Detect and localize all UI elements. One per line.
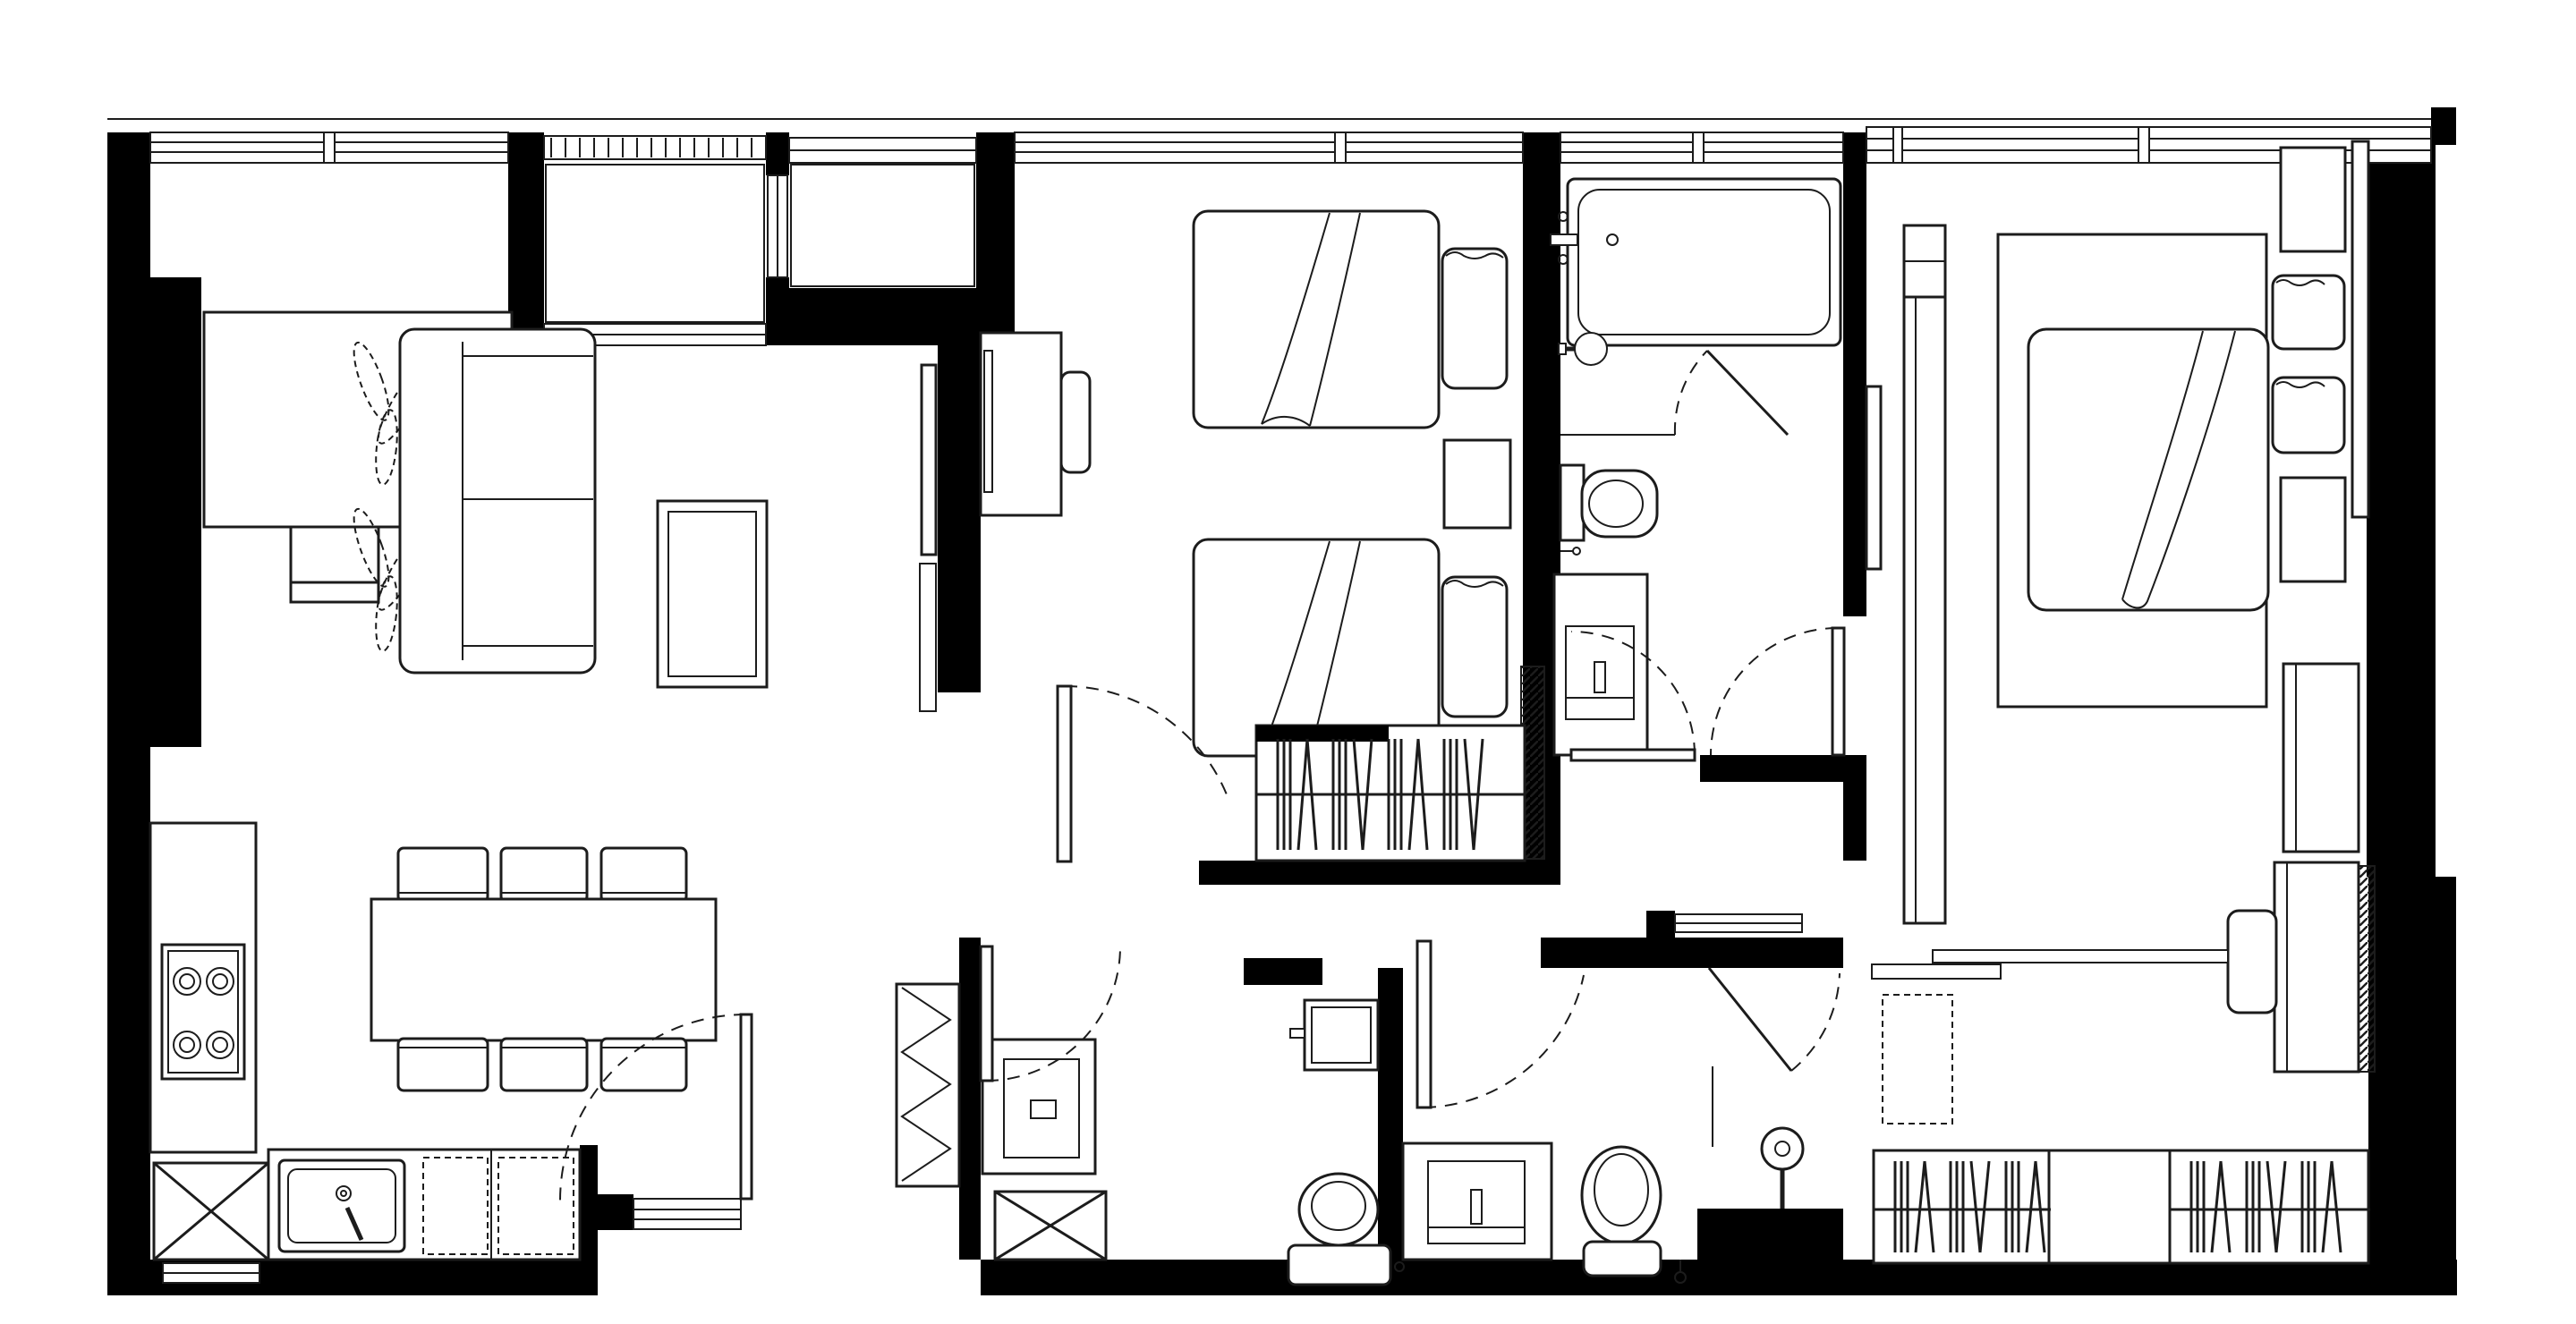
wall-bath2-north xyxy=(1244,958,1322,985)
floor-plan-svg xyxy=(0,0,2576,1324)
headboard xyxy=(2352,141,2368,517)
bathroom2-door-leaf[interactable] xyxy=(981,946,992,1081)
coffee-table xyxy=(658,501,767,687)
kitchen-sink xyxy=(279,1160,404,1252)
wall-bath-master xyxy=(1843,132,1866,616)
pillow xyxy=(2273,378,2344,453)
shelf-end-block xyxy=(1646,911,1675,938)
wall-vestibule-left xyxy=(959,968,981,1260)
wall-bath3-north xyxy=(1541,938,1843,968)
appliance-void-x-box xyxy=(154,1163,268,1283)
tub-faucet xyxy=(1551,234,1577,245)
pier-living-niche xyxy=(508,132,544,335)
bathtub xyxy=(1551,179,1841,345)
shower xyxy=(1713,1066,1803,1209)
wall-entry-stub xyxy=(592,1194,633,1230)
bathroom3-north-door-leaf[interactable] xyxy=(1417,941,1431,1108)
shoe-cabinet xyxy=(897,984,959,1186)
floor-plan-canvas: Two-bedroom apartment floor plan xyxy=(0,0,2576,1324)
wall-bath2-north-stub xyxy=(959,938,981,968)
bedroom2-door-leaf[interactable] xyxy=(1058,686,1071,861)
vanity-bathroom1 xyxy=(1554,574,1647,755)
wall-right xyxy=(2367,141,2436,877)
bathroom3-north-door-swing xyxy=(1424,975,1584,1108)
dining-set xyxy=(371,848,716,1091)
entrance-door-leaf[interactable] xyxy=(741,1014,752,1199)
single-bed-1 xyxy=(1194,211,1507,428)
louvered-vent-band xyxy=(544,136,766,159)
room-bathroom1 xyxy=(1551,179,1841,760)
nightstand-south xyxy=(2281,478,2345,581)
room-bathroom2 xyxy=(981,946,1404,1285)
wall-left-bottom xyxy=(107,747,150,1295)
wall-living-bedroom2 xyxy=(938,335,981,692)
ac-ledge-niche xyxy=(546,165,764,322)
desk-chair-master xyxy=(2228,911,2276,1013)
single-bed-2 xyxy=(1194,539,1507,756)
monitor xyxy=(984,351,992,492)
threshold xyxy=(633,1199,741,1229)
glass-door-leaf[interactable] xyxy=(1707,351,1788,435)
shelf-ledge-west xyxy=(1675,914,1802,932)
cooktop xyxy=(162,945,244,1079)
bathroom3-east-door-leaf[interactable] xyxy=(1709,968,1791,1071)
closet-row xyxy=(1874,1150,2370,1263)
pier-niche2-right xyxy=(976,132,1015,345)
dining-chair xyxy=(398,1039,488,1091)
wall-left-mid xyxy=(107,277,201,747)
sofa xyxy=(400,329,595,673)
dining-chair xyxy=(501,1039,587,1091)
dining-table xyxy=(371,899,716,1040)
desk xyxy=(981,333,1061,515)
wardrobe-bedroom2 xyxy=(1256,726,1525,861)
glass-door-swing xyxy=(1675,351,1707,435)
wall-tv-living xyxy=(922,365,936,555)
wall-left-top xyxy=(107,132,150,277)
wall-bedroom2-south xyxy=(1199,861,1560,885)
washing-machine-cabinet xyxy=(982,1040,1095,1174)
master-door-swing xyxy=(1711,628,1838,755)
tv-console-shelf xyxy=(291,582,378,602)
nightstand-north xyxy=(2281,148,2345,251)
dining-chair xyxy=(601,1039,686,1091)
bathroom3-east-door-swing xyxy=(1791,973,1840,1071)
mattress xyxy=(2028,329,2268,610)
duct-shaft-x-box xyxy=(995,1192,1106,1260)
window-bathroom1 xyxy=(1560,132,1843,163)
pillow xyxy=(2273,276,2344,349)
kitchen-counter-south xyxy=(268,1150,580,1260)
window-living xyxy=(150,132,508,163)
wall-bath1-south xyxy=(1700,755,1843,782)
desk-chair xyxy=(1061,372,1090,472)
slot-window-pier xyxy=(768,175,787,277)
window-niche2 xyxy=(789,138,976,286)
dashed-open-box xyxy=(1883,995,1952,1124)
tall-wardrobe-master xyxy=(1904,225,1945,923)
toilet-bathroom1 xyxy=(1560,465,1657,555)
window-bedroom2 xyxy=(1015,132,1523,163)
shelf-ledge-east-low xyxy=(1872,964,2001,979)
wall-right-corner xyxy=(2431,107,2456,145)
bathroom1-door-leaf[interactable] xyxy=(1571,750,1695,760)
wall-bottom-main xyxy=(981,1260,2457,1295)
wall-right-bottom xyxy=(2368,877,2456,1295)
media-shelf xyxy=(920,564,936,711)
pier-niche-top xyxy=(766,132,789,175)
wall-bath2-bath3 xyxy=(1378,968,1403,1260)
wall-stub-master-door xyxy=(1843,755,1866,861)
room-living-dining xyxy=(204,312,936,1091)
desk-master xyxy=(2274,862,2359,1072)
hatched-partition-master xyxy=(2359,866,2375,1072)
tv-console xyxy=(291,527,378,582)
wall-tv-master xyxy=(1866,386,1881,569)
round-wall-basin xyxy=(1559,333,1607,365)
nightstand xyxy=(1444,440,1510,528)
master-door-leaf[interactable] xyxy=(1832,628,1844,755)
shelf-ledge-east-high xyxy=(1933,950,2228,963)
room-bedroom2 xyxy=(981,211,1525,861)
wall-basin xyxy=(1290,1000,1378,1070)
dresser xyxy=(2283,664,2359,852)
vanity-bathroom3 xyxy=(1403,1143,1552,1260)
